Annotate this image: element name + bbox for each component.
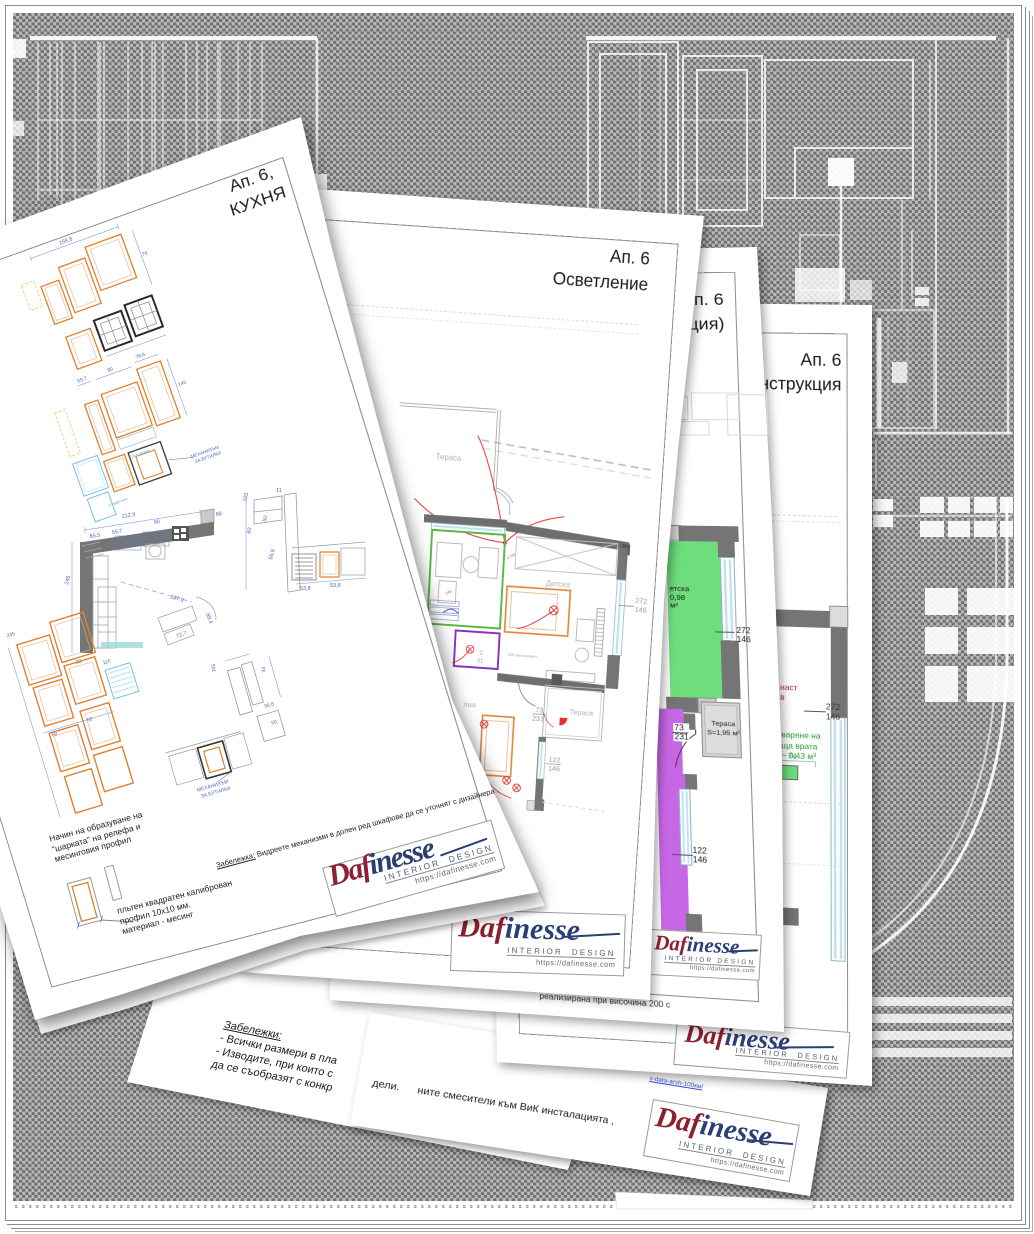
svg-text:115: 115 xyxy=(102,658,112,666)
svg-text:50: 50 xyxy=(271,719,278,726)
svg-text:60: 60 xyxy=(86,716,93,723)
svg-text:53,8: 53,8 xyxy=(330,583,341,589)
svg-text:34: 34 xyxy=(261,667,267,673)
svg-text:212,9: 212,9 xyxy=(121,512,136,520)
svg-text:76: 76 xyxy=(141,250,148,258)
svg-text:56,8: 56,8 xyxy=(268,549,277,561)
svg-text:105: 105 xyxy=(211,664,217,673)
svg-text:11: 11 xyxy=(276,488,282,494)
svg-text:68: 68 xyxy=(215,511,222,518)
svg-text:90: 90 xyxy=(153,519,160,526)
svg-text:145: 145 xyxy=(177,380,187,389)
svg-text:55,7: 55,7 xyxy=(111,528,123,536)
svg-text:60: 60 xyxy=(246,527,253,534)
svg-text:56,8: 56,8 xyxy=(264,701,275,710)
svg-text:50: 50 xyxy=(262,515,269,522)
svg-text:60: 60 xyxy=(51,731,58,738)
svg-text:65,5: 65,5 xyxy=(89,532,101,540)
svg-text:ред мивка: ред мивка xyxy=(131,448,151,459)
svg-text:245: 245 xyxy=(64,575,72,585)
